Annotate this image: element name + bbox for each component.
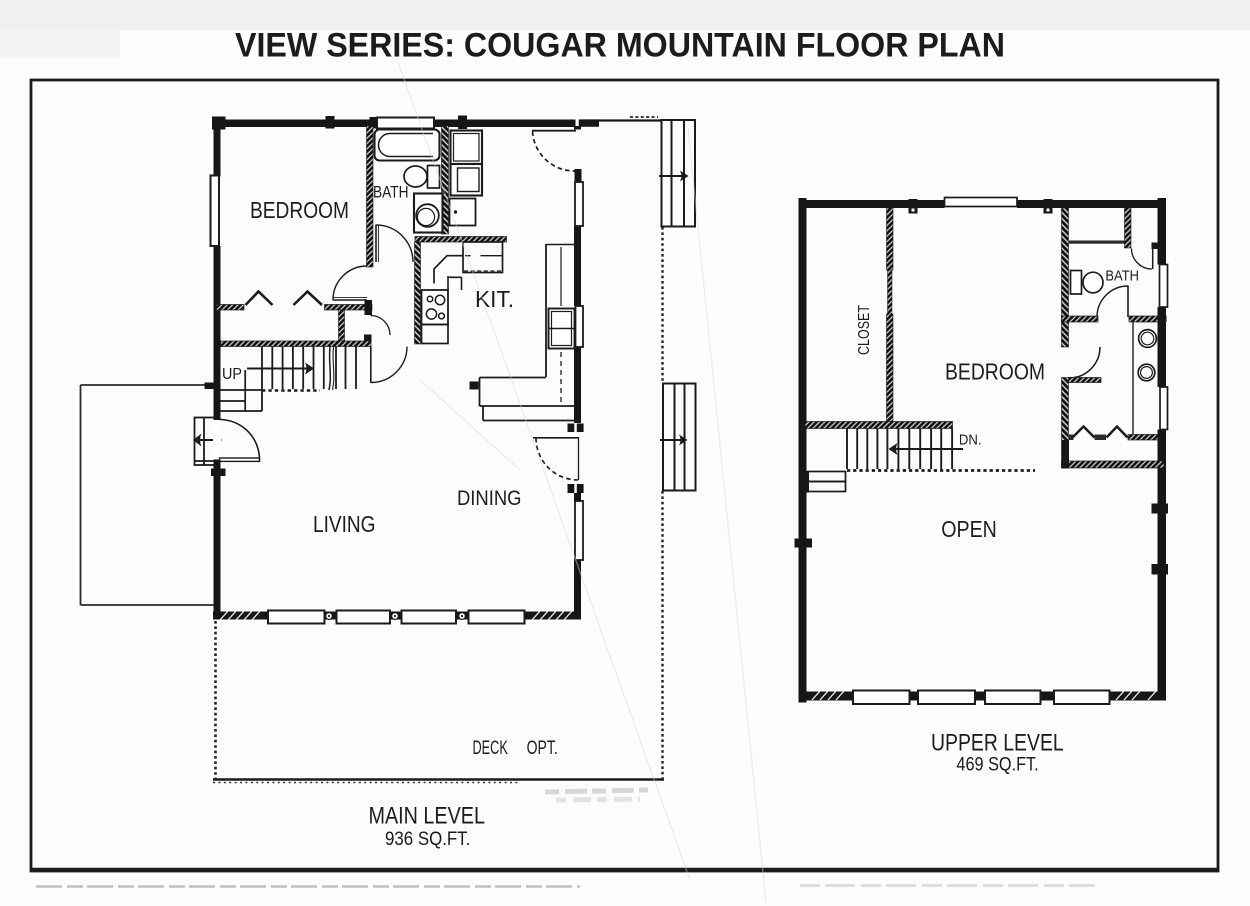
svg-text:469 SQ.FT.: 469 SQ.FT. xyxy=(956,754,1038,776)
svg-text:BATH: BATH xyxy=(373,183,409,202)
svg-text:CLOSET: CLOSET xyxy=(856,305,873,355)
svg-text:DN.: DN. xyxy=(959,433,982,449)
svg-text:DINING: DINING xyxy=(457,487,522,510)
svg-text:BEDROOM: BEDROOM xyxy=(250,197,349,223)
svg-text:UP: UP xyxy=(222,366,242,383)
svg-text:BATH: BATH xyxy=(1105,267,1139,284)
svg-text:DECK: DECK xyxy=(473,738,509,759)
svg-text:LIVING: LIVING xyxy=(313,511,376,537)
svg-text:OPT.: OPT. xyxy=(527,738,558,759)
svg-text:KIT.: KIT. xyxy=(475,286,514,312)
svg-text:VIEW SERIES: COUGAR MOUNTAIN F: VIEW SERIES: COUGAR MOUNTAIN FLOOR PLAN xyxy=(235,27,1005,65)
svg-text:936 SQ.FT.: 936 SQ.FT. xyxy=(385,828,470,850)
svg-text:MAIN LEVEL: MAIN LEVEL xyxy=(369,803,486,830)
svg-text:BEDROOM: BEDROOM xyxy=(945,359,1045,385)
svg-text:UPPER LEVEL: UPPER LEVEL xyxy=(931,730,1064,757)
svg-text:OPEN: OPEN xyxy=(941,516,997,542)
